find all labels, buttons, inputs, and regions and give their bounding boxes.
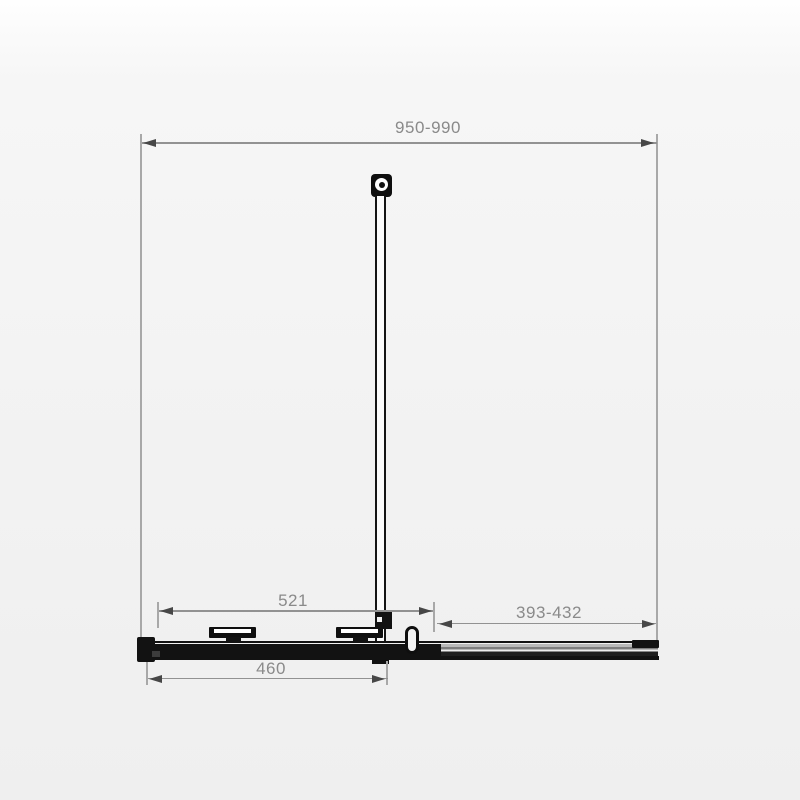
- roller-tab-right: [353, 637, 368, 643]
- wall-profile-left: [137, 637, 155, 662]
- bracket-screw-icon: [379, 182, 385, 188]
- connector-notch: [377, 617, 382, 622]
- panel-rail-connector: [375, 611, 392, 629]
- dimension-label-overall-width: 950-990: [358, 119, 498, 136]
- extension-tick-left: [157, 602, 159, 628]
- dimension-label-inner-left: 521: [243, 592, 343, 609]
- extension-line-left: [140, 134, 142, 645]
- roller-tab-left: [226, 637, 241, 643]
- dimension-arrow-right: [372, 675, 385, 683]
- extension-line-left: [146, 662, 148, 685]
- roller-slot: [214, 629, 251, 633]
- dimension-arrow-left: [149, 675, 162, 683]
- rail-bottom-edge: [150, 656, 659, 660]
- dimension-label-bottom: 460: [221, 660, 321, 677]
- rail-end-cap-right: [632, 640, 659, 648]
- dimension-line: [437, 623, 656, 625]
- extension-tick-middle: [433, 602, 435, 632]
- bracket-screw-hole: [375, 178, 388, 191]
- fixed-glass-panel: [375, 196, 386, 642]
- dimension-label-inner-right: 393-432: [484, 604, 614, 621]
- dimension-arrow-right: [641, 139, 654, 147]
- roller-slot: [341, 629, 378, 633]
- dimension-arrow-left: [439, 620, 452, 628]
- rail-right-section: [441, 644, 658, 656]
- wall-profile-step: [152, 651, 160, 657]
- dimension-arrow-left: [143, 139, 156, 147]
- extension-line-right: [656, 134, 658, 641]
- extension-line-right: [386, 661, 388, 685]
- dimension-arrow-left: [160, 607, 173, 615]
- technical-drawing-canvas: 950-990 521 393-432: [0, 0, 800, 800]
- dimension-line: [142, 142, 657, 144]
- sliding-door-rail-dark: [153, 644, 441, 656]
- dimension-arrow-right: [642, 620, 655, 628]
- door-guide-hook: [405, 626, 419, 654]
- dimension-line: [159, 610, 434, 612]
- dimension-arrow-right: [419, 607, 432, 615]
- wall-bracket: [371, 174, 392, 197]
